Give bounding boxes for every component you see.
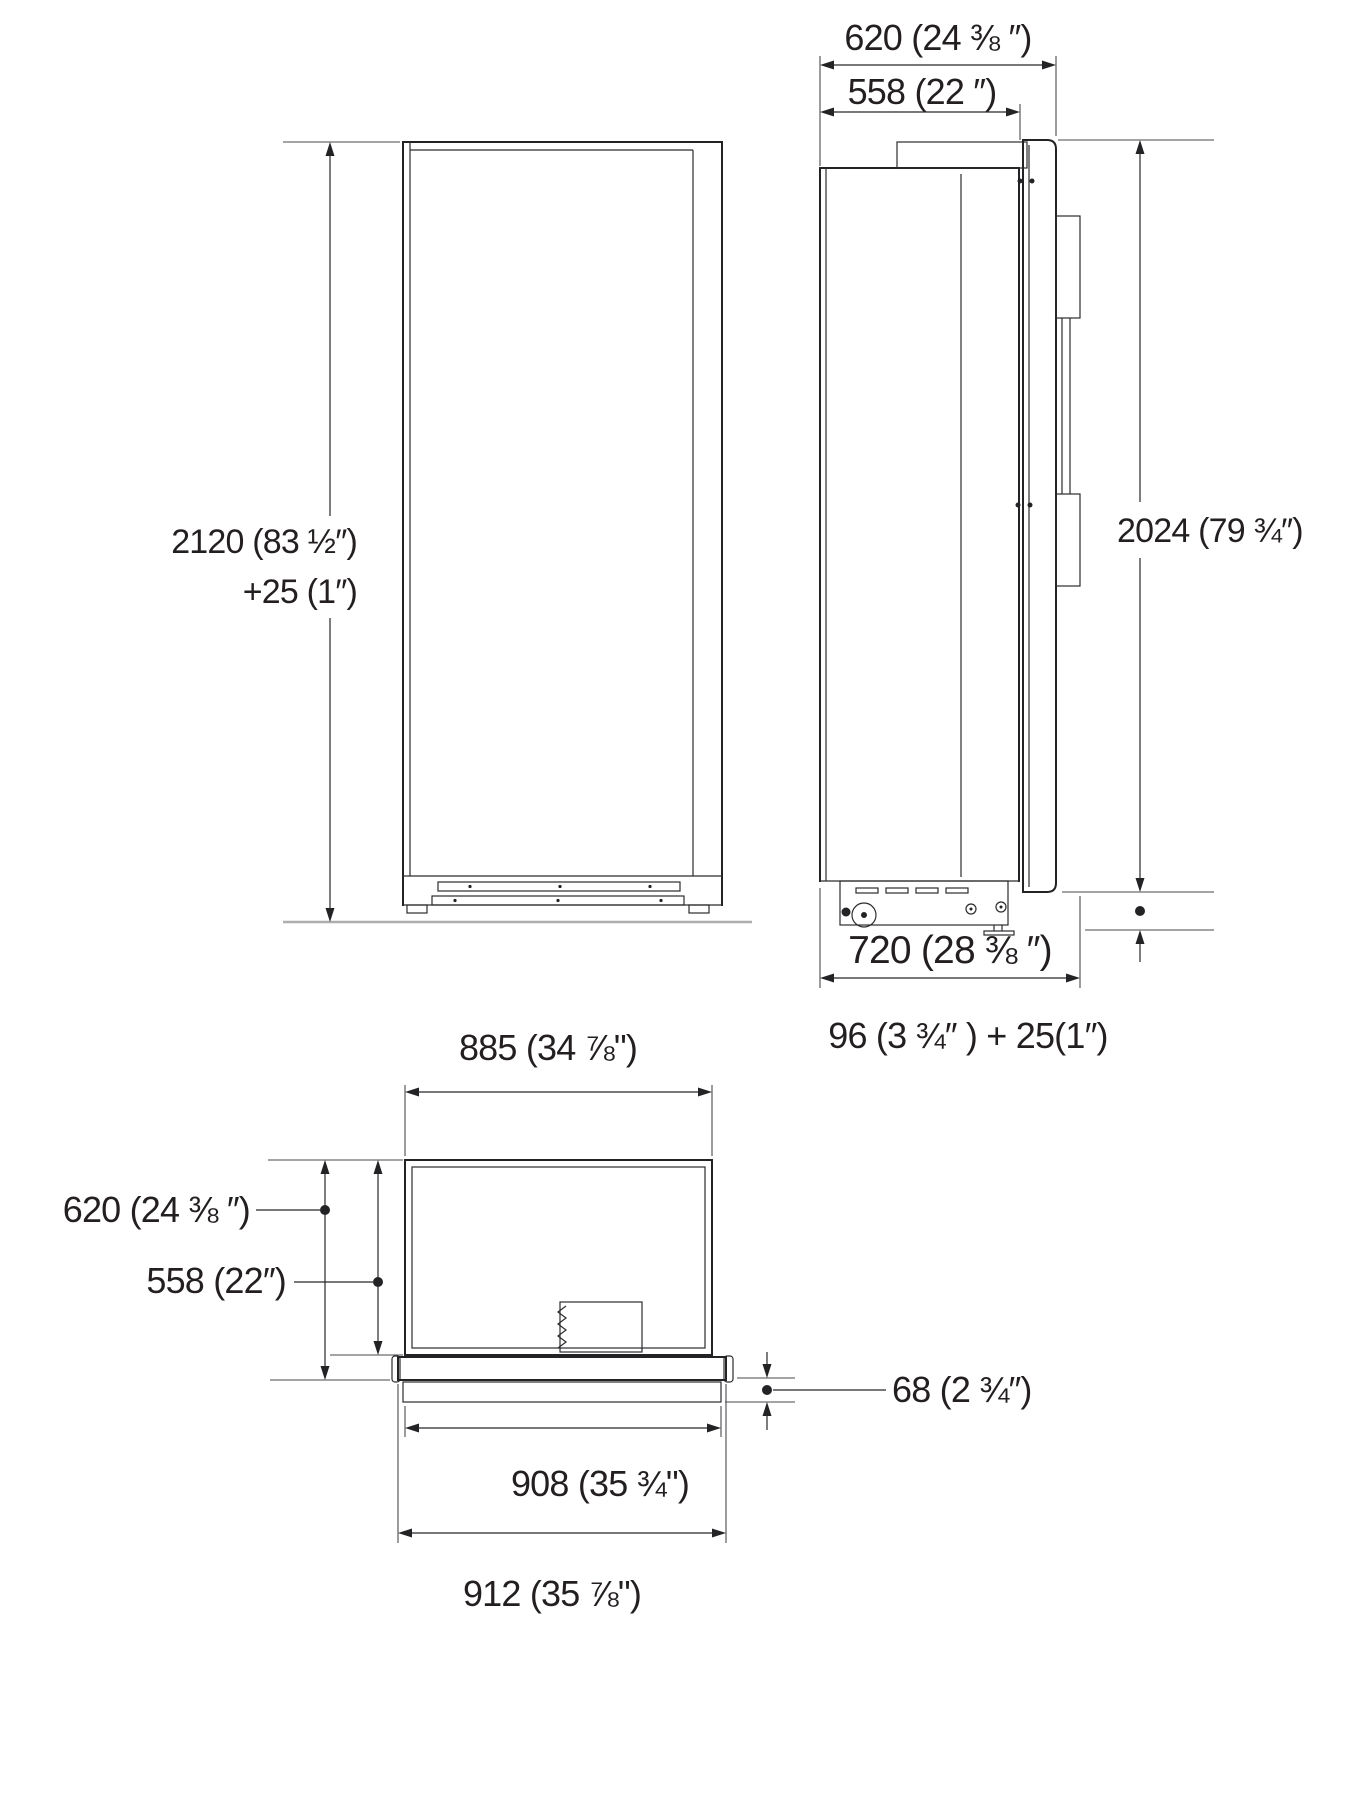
side-depth-recess-dimension: 558 (22 ″) [820, 71, 1020, 140]
side-view [820, 140, 1080, 935]
front-foot [689, 905, 709, 913]
dimension-drawing-page: 2120 (83 ½″) +25 (1″) [0, 0, 1357, 1820]
top-width-label: 885 (34 ⅞") [459, 1027, 637, 1068]
cord-box [560, 1302, 642, 1352]
door-mount-bracket [1056, 216, 1080, 318]
top-depth-incl-door-label: 620 (24 ⅜ ″) [63, 1189, 250, 1230]
appliance-dimension-drawing: 2120 (83 ½″) +25 (1″) [0, 0, 1357, 1820]
top-total-width-label: 912 (35 ⅞") [463, 1573, 641, 1614]
front-foot [407, 905, 427, 913]
side-door-height-dimension: 2024 (79 ¾″) [1058, 140, 1303, 892]
side-door [1023, 140, 1056, 892]
side-top-bracket [897, 142, 1027, 168]
front-height-dimension: 2120 (83 ½″) +25 (1″) [171, 142, 752, 922]
front-view [403, 142, 722, 913]
top-width-dimension: 885 (34 ⅞") [405, 1027, 712, 1156]
door-mount-bracket [1056, 494, 1080, 586]
top-depth-body-label: 558 (22″) [146, 1260, 286, 1301]
side-depth-total-label: 720 (28 ⅜ ″) [848, 929, 1052, 972]
side-depth-total-dimension: 720 (28 ⅜ ″) [820, 888, 1080, 988]
top-door-offset-label: 68 (2 ¾″) [892, 1369, 1032, 1410]
top-door-offset-dimension: 68 (2 ¾″) [725, 1352, 1032, 1430]
side-door-height-label: 2024 (79 ¾″) [1117, 512, 1303, 550]
top-door-panel [403, 1382, 721, 1402]
side-depth-top-label: 620 (24 ⅜ ″) [844, 17, 1031, 58]
side-depth-recess-label: 558 (22 ″) [848, 71, 997, 112]
front-height-label: 2120 (83 ½″) [171, 523, 357, 561]
top-door-width-dimension: 908 (35 ¾") [405, 1406, 721, 1504]
front-height-adjust-label: +25 (1″) [243, 573, 357, 611]
top-door [398, 1357, 726, 1380]
top-door-width-label: 908 (35 ¾") [511, 1463, 689, 1504]
top-view [392, 1160, 733, 1402]
side-base-height-label: 96 (3 ¾″ ) + 25(1″) [828, 1015, 1107, 1056]
